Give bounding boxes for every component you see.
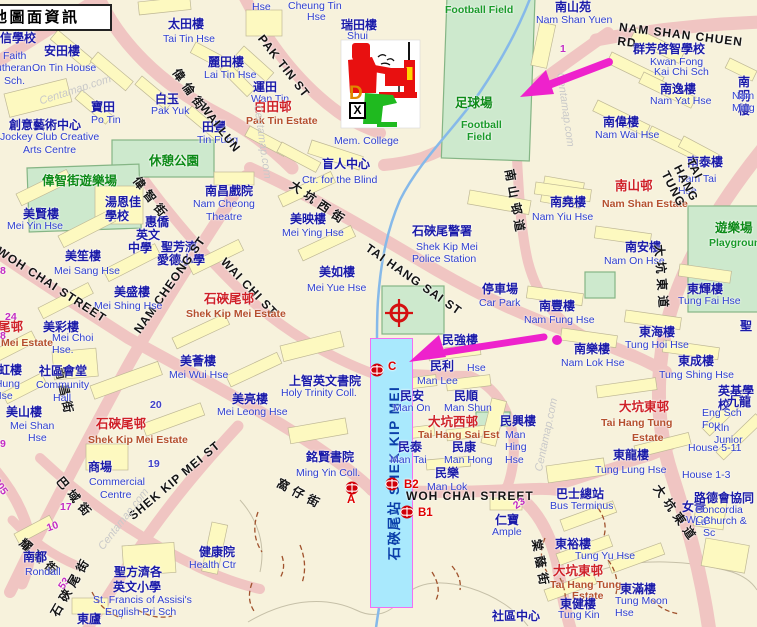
map-info-button[interactable]: 地圖面資訊 xyxy=(0,4,112,31)
exit-label-a: A xyxy=(347,494,355,506)
clipart-sewing-machine xyxy=(341,40,420,128)
exit-label-c: C xyxy=(388,361,396,373)
exit-label-b2: B2 xyxy=(404,479,419,491)
mtr-station-bar: 石硤尾站 SHEK KIP MEI xyxy=(370,338,413,608)
map-stage: 石硤尾站 SHEK KIP MEI 太田樓Tai Tin Hse安田樓On Ti… xyxy=(0,0,757,627)
station-name: 石硤尾站 SHEK KIP MEI xyxy=(383,339,399,607)
exit-label-b1: B1 xyxy=(418,507,433,519)
